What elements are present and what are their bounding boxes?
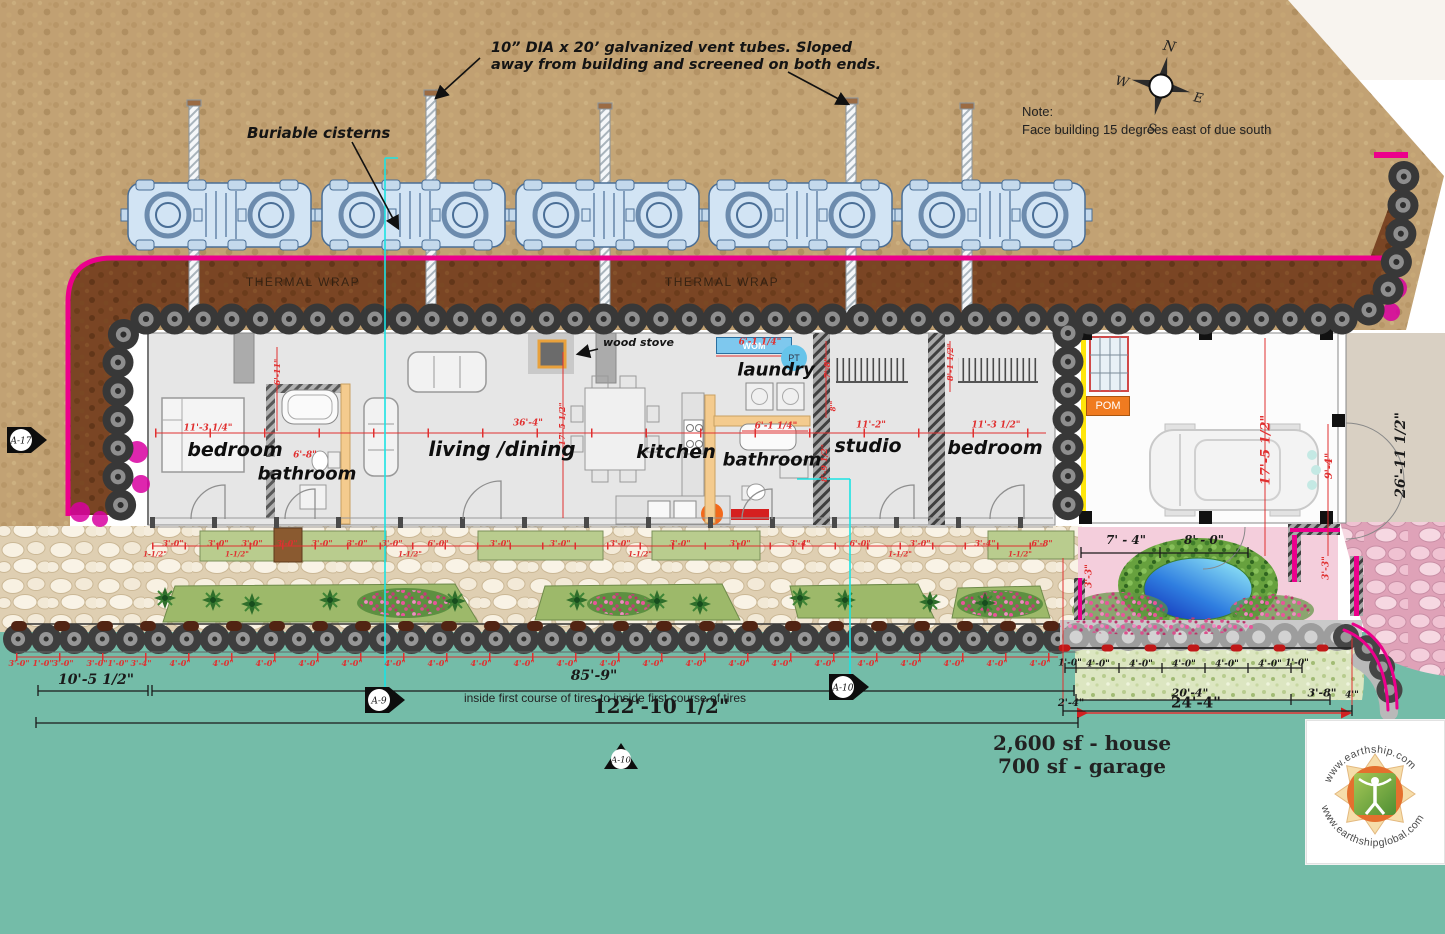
dimension-label: 1'-0" (32, 659, 53, 667)
garage-area-label: 700 sf - garage (998, 754, 1166, 778)
dimension-label: 8' - 0" (1184, 534, 1224, 546)
dimension-label: 1-1/2" (628, 551, 652, 558)
dimension-label: 1-1/2" (888, 551, 912, 558)
dimension-label: 4'-0" (771, 659, 792, 667)
dimension-label: 3'-0" (909, 539, 930, 547)
earthship-site-plan: N E S W 10” DIA x 20’ galvanized vent tu… (0, 0, 1445, 934)
marker-a9-label: A-9 (370, 697, 387, 707)
dimension-label: 11'-3 1/2" (972, 422, 1021, 431)
room-label: kitchen (636, 441, 715, 463)
dimension-label: 3'-4" (974, 539, 995, 547)
dimension-label: 3'-0" (86, 659, 107, 667)
dimension-label: 4'-0" (728, 659, 749, 667)
dimension-label: 3'-4" (130, 659, 151, 667)
section-marker-a10-up: A-10 (603, 742, 639, 774)
dimension-label: 3'-0" (8, 659, 29, 667)
room-label: bathroom (258, 464, 357, 485)
dimension-label: 4'-0" (470, 659, 491, 667)
room-label: living /dining (428, 437, 575, 461)
dimension-label: 3'-0" (609, 539, 630, 547)
orientation-note: Note: Face building 15 degrees east of d… (1022, 103, 1271, 139)
wood-stove-label: wood stove (603, 336, 674, 349)
dimension-label: 1'-0" (1285, 660, 1309, 669)
dimension-label: 3'-0" (52, 659, 73, 667)
dimension-label: 7' - 4" (1106, 534, 1146, 546)
section-marker-a9: A-9 (364, 686, 408, 718)
dimension-label: 3'-0" (729, 539, 750, 547)
dimension-label: 7'-8" (823, 357, 831, 378)
dimension-label: 4'-0" (900, 659, 921, 667)
vent-note-line1: 10” DIA x 20’ galvanized vent tubes. Slo… (491, 40, 881, 57)
dimension-label: 3'-0" (381, 539, 402, 547)
note-body: Face building 15 degrees east of due sou… (1022, 121, 1271, 139)
dimension-label: 6'-0" (849, 539, 870, 547)
overall-dimension-label: 24'-4" (1171, 696, 1221, 711)
section-marker-a10: A-10 (828, 673, 872, 705)
dimension-label: 17'-5 1/2" (1260, 415, 1273, 486)
dimension-label: 36'-4" (513, 420, 543, 429)
car (1150, 424, 1321, 516)
dimension-label: 10'-5 1/2" (58, 673, 134, 687)
room-label: bathroom (723, 450, 822, 471)
cistern-row (120, 180, 1092, 250)
pom-label: POM (1095, 400, 1120, 412)
room-label: bedroom (947, 437, 1042, 459)
dimension-label: 6'-1 1/4" (755, 423, 798, 432)
dimension-label: 9'-4" (1325, 453, 1335, 479)
vent-tube-note: 10” DIA x 20’ galvanized vent tubes. Slo… (491, 40, 881, 74)
dimension-label: 6'-1 1/4" (739, 339, 782, 348)
dimension-label: 4'" (1345, 692, 1359, 701)
dimension-label: 3'-3" (1086, 564, 1095, 588)
dimension-label: 4'-0" (1129, 661, 1153, 670)
dimension-label: 4'-0" (255, 659, 276, 667)
dimension-label: 3'-0" (489, 539, 510, 547)
thermal-wrap-label-left: THERMAL WRAP (246, 275, 360, 289)
dimension-label: 4'-0" (1215, 661, 1239, 670)
dimension-label: 4'-0" (384, 659, 405, 667)
dimension-label: 4'-0" (427, 659, 448, 667)
dimension-label: 3'-0" (669, 539, 690, 547)
buriable-cisterns-label: Buriable cisterns (247, 124, 390, 142)
dimension-label: 4'-0" (685, 659, 706, 667)
dimension-label: 6'-8" (1031, 539, 1052, 547)
power-organizing-module: POM (1086, 396, 1130, 416)
note-title: Note: (1022, 103, 1271, 121)
dimension-label: 1-1/2" (1008, 551, 1032, 558)
overall-dimension-label: 122'-10 1/2" (593, 696, 730, 716)
dimension-label: 26'-11 1/2" (1394, 412, 1408, 498)
dimension-label: 4'-0" (599, 659, 620, 667)
dimension-label: 3'-0" (162, 539, 183, 547)
dimension-label: 4'-0" (814, 659, 835, 667)
dimension-label: 85'-9" (571, 669, 618, 683)
dimension-label: 1'-0" (1058, 660, 1082, 669)
dimension-label: 3'-8" (1308, 688, 1337, 699)
dimension-label: 4'-0" (1172, 661, 1196, 670)
dimension-label: 4'-0" (1258, 661, 1282, 670)
dimension-label: 4'-0" (341, 659, 362, 667)
dimension-label: 8'-1 1/2" (946, 343, 954, 381)
room-label: bedroom (187, 439, 282, 461)
dimension-label: 4'-0" (556, 659, 577, 667)
room-label: studio (834, 435, 901, 457)
dimension-label: 8'" (830, 401, 837, 412)
dimension-label: 4'-0" (298, 659, 319, 667)
dimension-label: 1-1/2" (225, 551, 249, 558)
dimension-label: 17'-5 1/2" (558, 402, 566, 445)
dimension-label: 4'-0" (513, 659, 534, 667)
dimension-label: 11'-3 1/4" (184, 425, 233, 434)
dimension-label: 3'-3" (1323, 556, 1332, 580)
dimension-label: 1-1/2" (143, 551, 167, 558)
marker-a17-label: A-17 (10, 437, 32, 447)
marker-a10-up-label: A-10 (610, 756, 631, 766)
dimension-label: 8'-9 1/2" (820, 444, 828, 482)
dimension-label: 4'-0" (857, 659, 878, 667)
dimension-label: 4'-0" (986, 659, 1007, 667)
dimension-label: 2'-4" (1058, 699, 1084, 709)
dimension-label: 6'-11" (273, 359, 281, 386)
section-marker-a17: A-17 (6, 426, 50, 458)
dimension-label: 3'-0" (207, 539, 228, 547)
dimension-label: 4'-0" (212, 659, 233, 667)
dimension-label: 3'-0" (241, 539, 262, 547)
dimension-label: 11'-2" (856, 422, 886, 431)
thermal-wrap-label-right: THERMAL WRAP (665, 275, 779, 289)
dimension-label: 4'-0" (169, 659, 190, 667)
marker-a10-label: A-10 (832, 684, 854, 694)
dimension-label: 1-1/2" (398, 551, 422, 558)
dimension-label: 4'-0" (642, 659, 663, 667)
earthship-logo: www.earthship.com www.earthshipglobal.co… (1306, 720, 1445, 864)
dimension-label: 3'-0" (311, 539, 332, 547)
house-area-label: 2,600 sf - house (993, 731, 1171, 755)
vent-note-line2: away from building and screened on both … (491, 57, 881, 74)
dimension-label: 4'-0" (1029, 659, 1050, 667)
dimension-label: 3'-4" (789, 539, 810, 547)
dimension-label: 4'-0" (1086, 661, 1110, 670)
dimension-label: 1'-0" (107, 659, 128, 667)
dimension-label: 6'-8" (293, 452, 317, 461)
dimension-label: 4'-0" (943, 659, 964, 667)
room-label: laundry (737, 360, 814, 381)
dimension-label: 6'-0" (427, 539, 448, 547)
dimension-label: 3'-0" (276, 539, 297, 547)
dimension-label: 3'-0" (549, 539, 570, 547)
garden-beds (154, 584, 1050, 622)
dimension-label: 3'-0" (346, 539, 367, 547)
